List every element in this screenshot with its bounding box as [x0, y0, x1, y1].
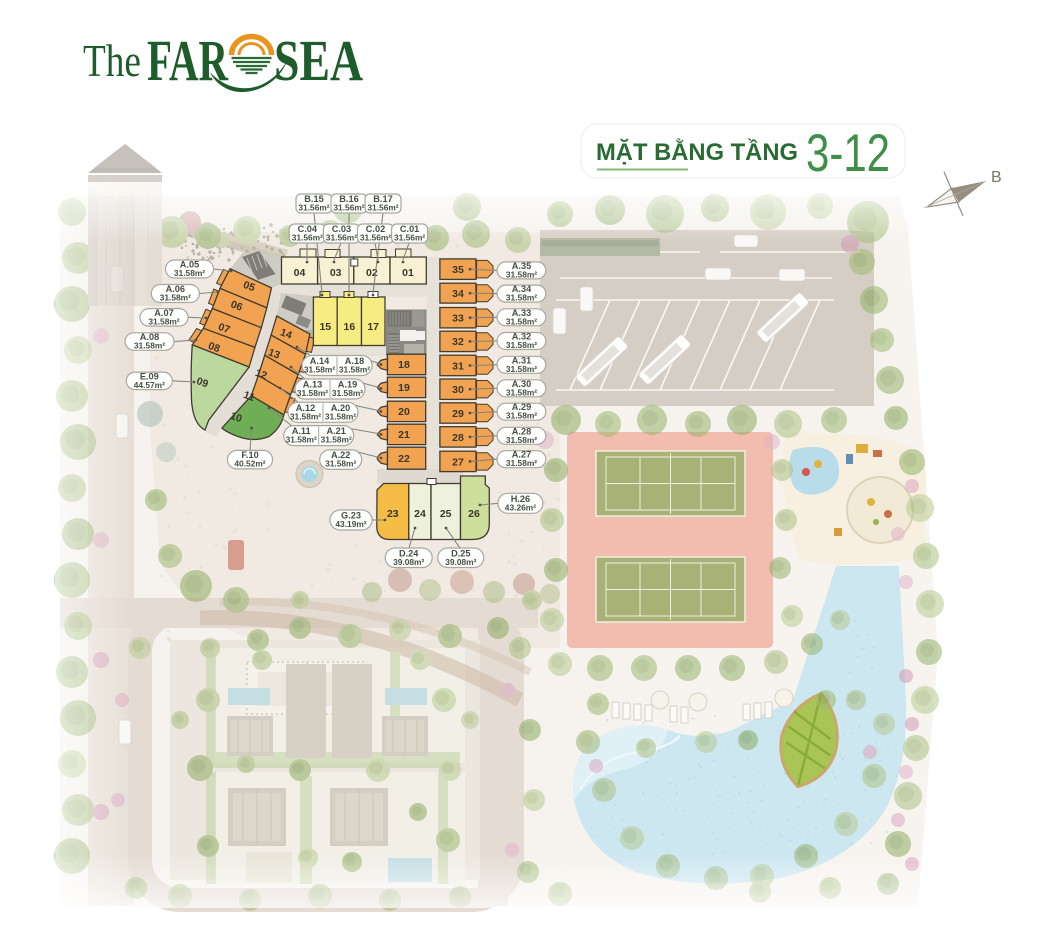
svg-text:31.58m²: 31.58m²: [148, 316, 179, 326]
svg-text:31.58m²: 31.58m²: [325, 411, 356, 421]
svg-text:31.58m²: 31.58m²: [506, 269, 537, 279]
svg-text:31.58m²: 31.58m²: [506, 458, 537, 468]
svg-text:39.08m²: 39.08m²: [445, 557, 476, 567]
svg-text:31.58m²: 31.58m²: [297, 388, 328, 398]
svg-text:35: 35: [452, 264, 464, 276]
svg-text:24: 24: [414, 508, 426, 520]
svg-text:31.58m²: 31.58m²: [506, 364, 537, 374]
svg-text:18: 18: [398, 359, 410, 371]
svg-text:20: 20: [398, 406, 410, 418]
svg-text:40.52m²: 40.52m²: [234, 459, 265, 469]
svg-text:31.56m²: 31.56m²: [360, 233, 391, 243]
svg-text:21: 21: [398, 429, 410, 441]
svg-text:28: 28: [452, 432, 464, 444]
svg-text:31.58m²: 31.58m²: [506, 435, 537, 445]
svg-text:30: 30: [452, 384, 464, 396]
svg-text:31.56m²: 31.56m²: [292, 233, 323, 243]
svg-text:19: 19: [398, 382, 410, 394]
svg-text:31.58m²: 31.58m²: [506, 316, 537, 326]
svg-text:31.58m²: 31.58m²: [304, 365, 335, 375]
svg-text:3-12: 3-12: [806, 124, 890, 183]
svg-text:25: 25: [440, 508, 452, 520]
svg-text:03: 03: [330, 267, 342, 279]
svg-text:31.58m²: 31.58m²: [506, 293, 537, 303]
svg-text:MẶT BẰNG TẦNG: MẶT BẰNG TẦNG: [596, 138, 798, 166]
svg-text:04: 04: [294, 267, 306, 279]
svg-text:31.56m²: 31.56m²: [298, 203, 329, 213]
svg-text:31.58m²: 31.58m²: [325, 459, 356, 469]
svg-text:31.58m²: 31.58m²: [506, 340, 537, 350]
svg-text:31.58m²: 31.58m²: [290, 411, 321, 421]
svg-text:31.58m²: 31.58m²: [506, 411, 537, 421]
svg-text:31: 31: [452, 361, 464, 373]
svg-text:31.58m²: 31.58m²: [321, 435, 352, 445]
svg-text:26: 26: [468, 508, 480, 520]
svg-text:31.58m²: 31.58m²: [160, 293, 191, 303]
svg-text:27: 27: [452, 457, 464, 469]
svg-text:The: The: [83, 36, 141, 86]
svg-text:34: 34: [452, 288, 464, 300]
svg-text:44.57m²: 44.57m²: [134, 380, 165, 390]
svg-text:16: 16: [344, 321, 356, 333]
svg-text:43.26m²: 43.26m²: [505, 502, 536, 512]
svg-text:29: 29: [452, 408, 464, 420]
svg-text:22: 22: [398, 453, 410, 465]
svg-text:39.08m²: 39.08m²: [393, 557, 424, 567]
svg-text:FAR: FAR: [147, 28, 229, 93]
svg-text:31.58m²: 31.58m²: [506, 387, 537, 397]
svg-text:01: 01: [402, 267, 414, 279]
svg-text:31.56m²: 31.56m²: [326, 233, 357, 243]
svg-text:31.58m²: 31.58m²: [286, 435, 317, 445]
svg-text:B: B: [991, 169, 1002, 186]
svg-text:31.58m²: 31.58m²: [332, 388, 363, 398]
svg-text:15: 15: [319, 321, 331, 333]
svg-text:31.56m²: 31.56m²: [367, 203, 398, 213]
svg-text:SEA: SEA: [274, 28, 363, 93]
svg-text:31.58m²: 31.58m²: [174, 268, 205, 278]
svg-text:17: 17: [367, 321, 379, 333]
svg-text:33: 33: [452, 313, 464, 325]
svg-text:31.56m²: 31.56m²: [394, 233, 425, 243]
svg-text:31.58m²: 31.58m²: [339, 365, 370, 375]
svg-text:31.56m²: 31.56m²: [333, 203, 364, 213]
svg-text:31.58m²: 31.58m²: [134, 341, 165, 351]
svg-text:43.19m²: 43.19m²: [335, 519, 366, 529]
svg-text:32: 32: [452, 336, 464, 348]
svg-text:23: 23: [387, 508, 399, 520]
